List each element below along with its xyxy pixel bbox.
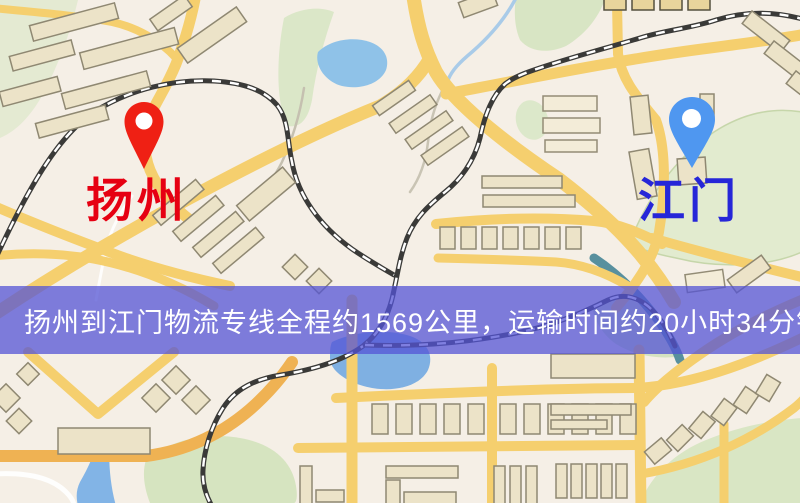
- destination-pin-shape: [669, 97, 715, 168]
- destination-pin-hole: [682, 109, 701, 128]
- origin-pin-hole: [136, 113, 153, 130]
- map-canvas[interactable]: [0, 0, 800, 503]
- destination-city-label: 江门: [638, 177, 740, 224]
- map-view[interactable]: 扬州 江门 扬州到江门物流专线全程约1569公里，运输时间约20小时34分钟.: [0, 0, 800, 503]
- destination-marker-icon[interactable]: [667, 96, 717, 170]
- route-info-text: 扬州到江门物流专线全程约1569公里，运输时间约20小时34分钟.: [24, 301, 800, 340]
- origin-marker-icon[interactable]: [123, 101, 165, 171]
- route-info-banner: 扬州到江门物流专线全程约1569公里，运输时间约20小时34分钟.: [0, 286, 800, 354]
- origin-city-label: 扬州: [86, 177, 188, 224]
- origin-pin-shape: [125, 102, 164, 169]
